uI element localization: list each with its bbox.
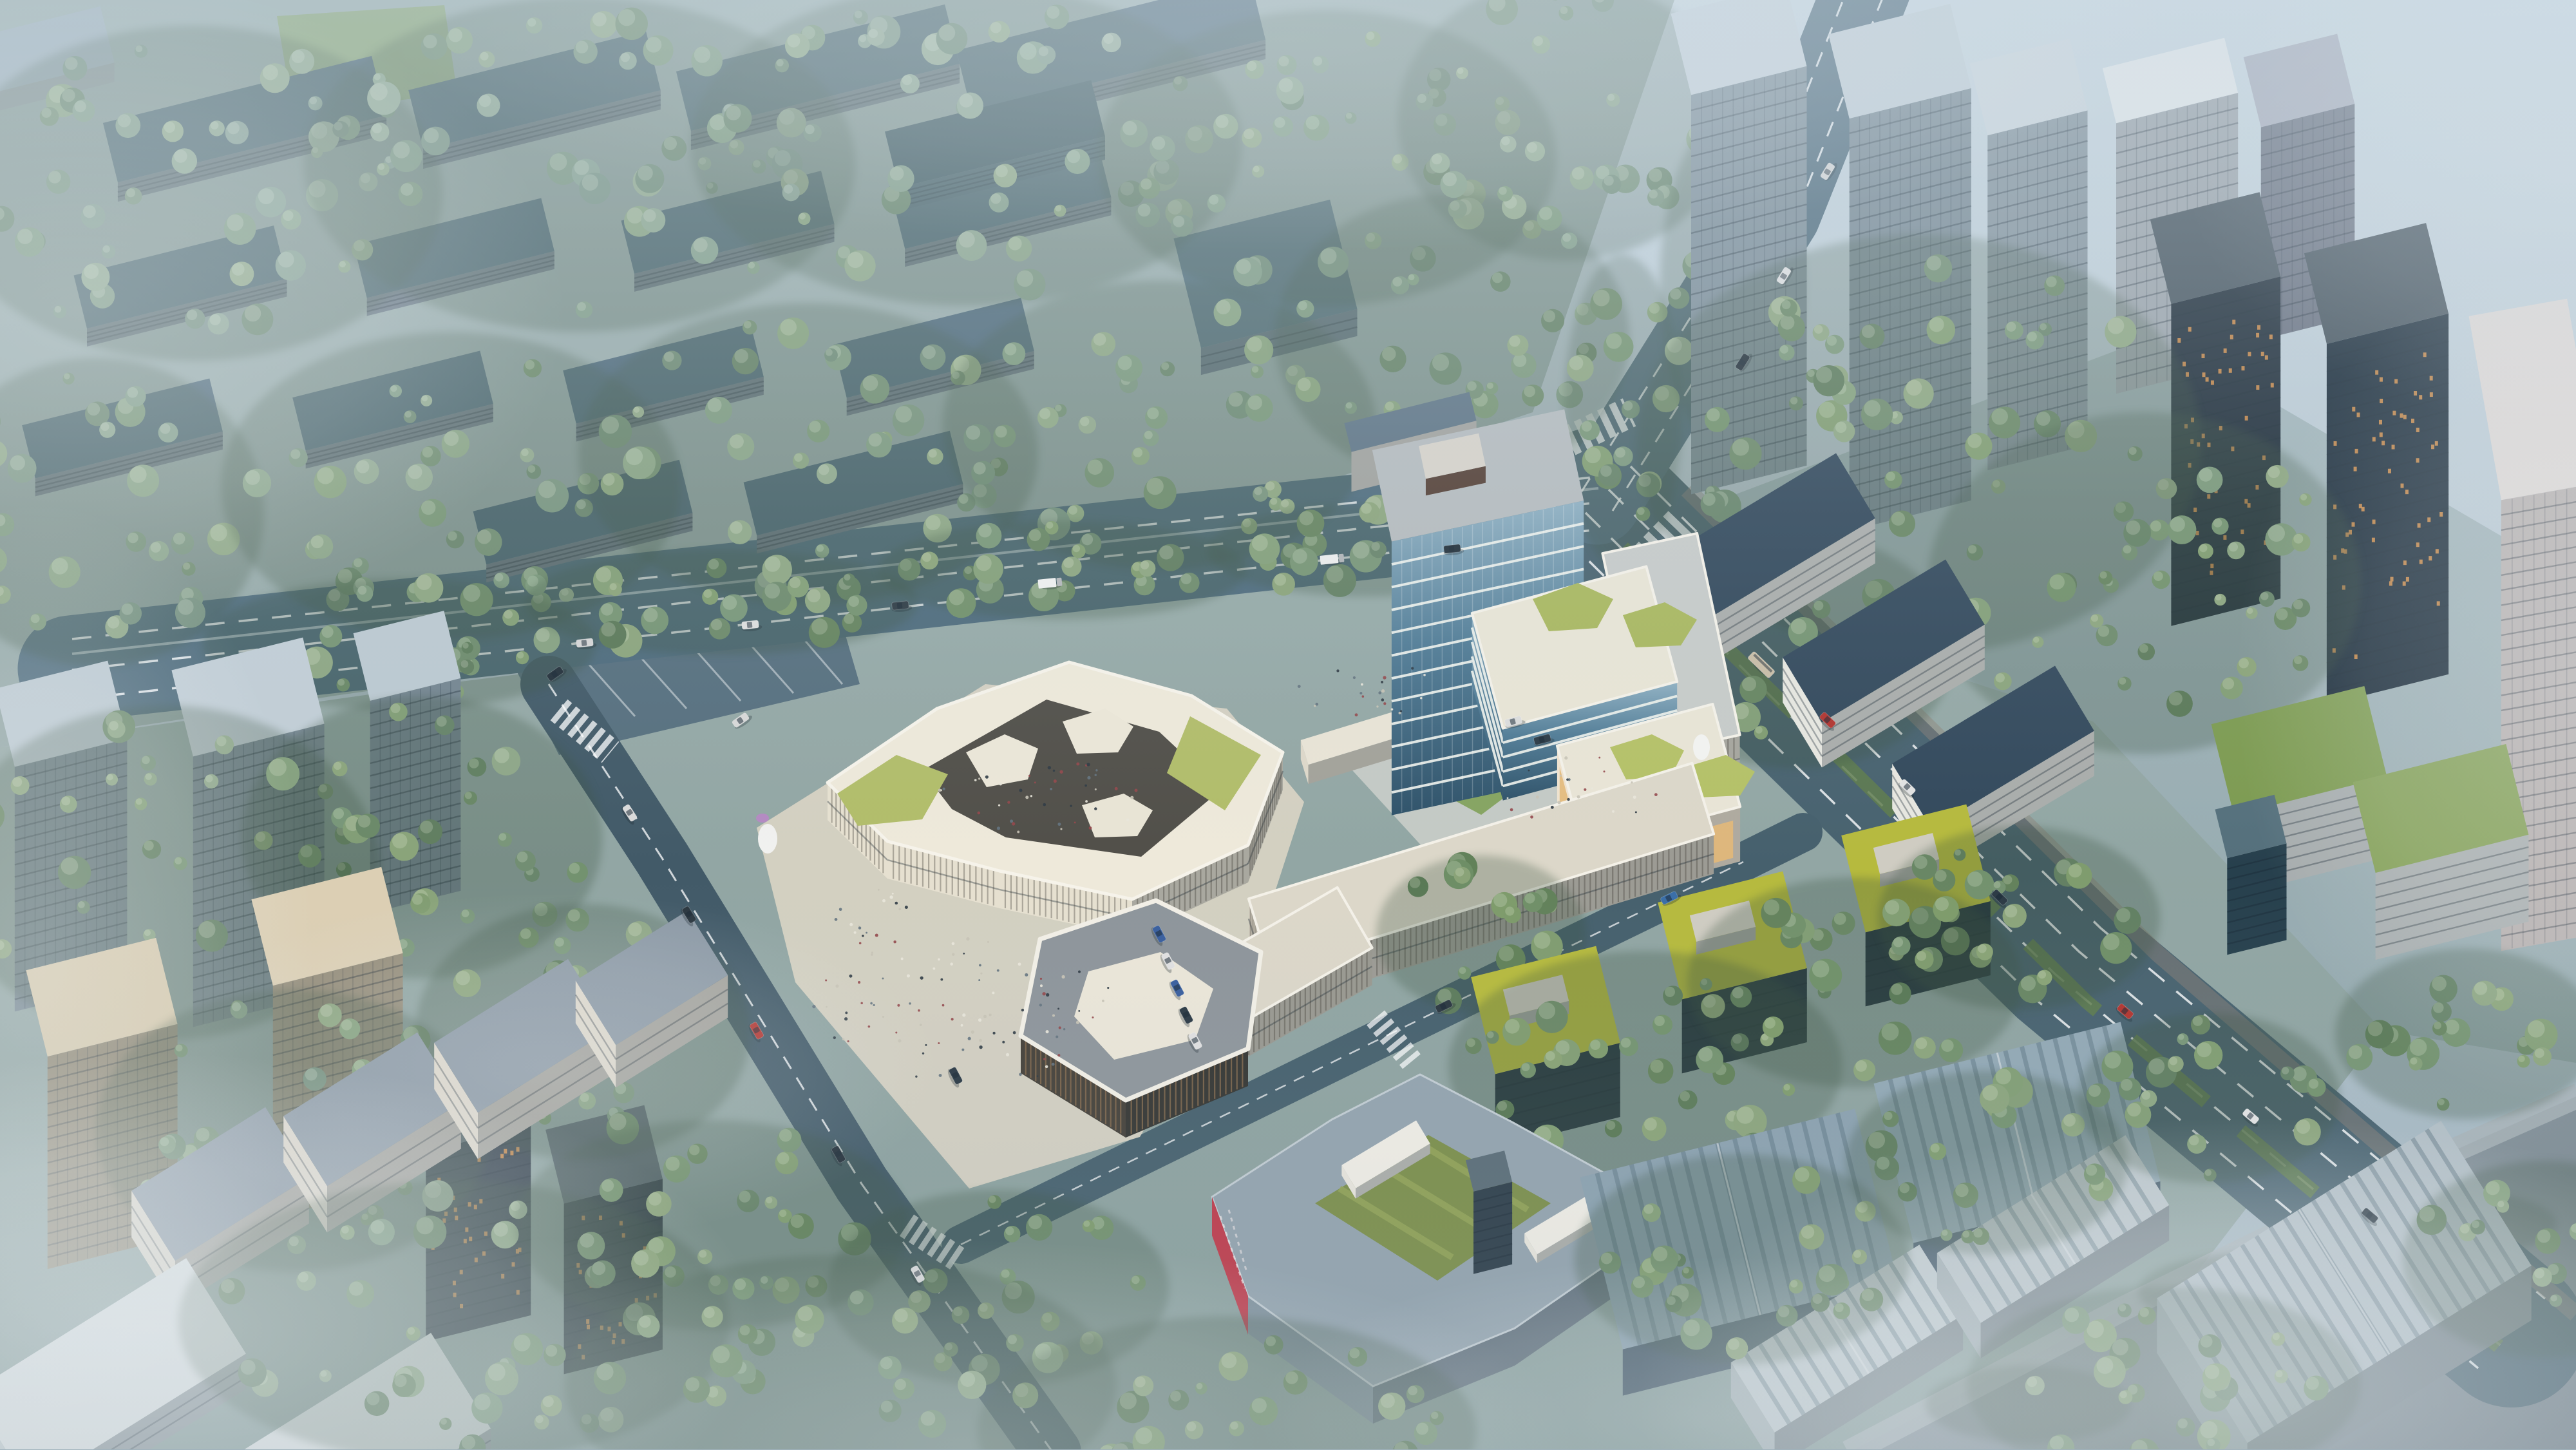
render-viewport: Photorealistic aerial rendering of a mix… [0,0,2576,1449]
aerial-render-figure: Photorealistic aerial rendering of a mix… [0,0,2576,1449]
aerial-city-render [0,0,2576,1449]
atmospheric-haze-overlay [0,0,2576,1449]
